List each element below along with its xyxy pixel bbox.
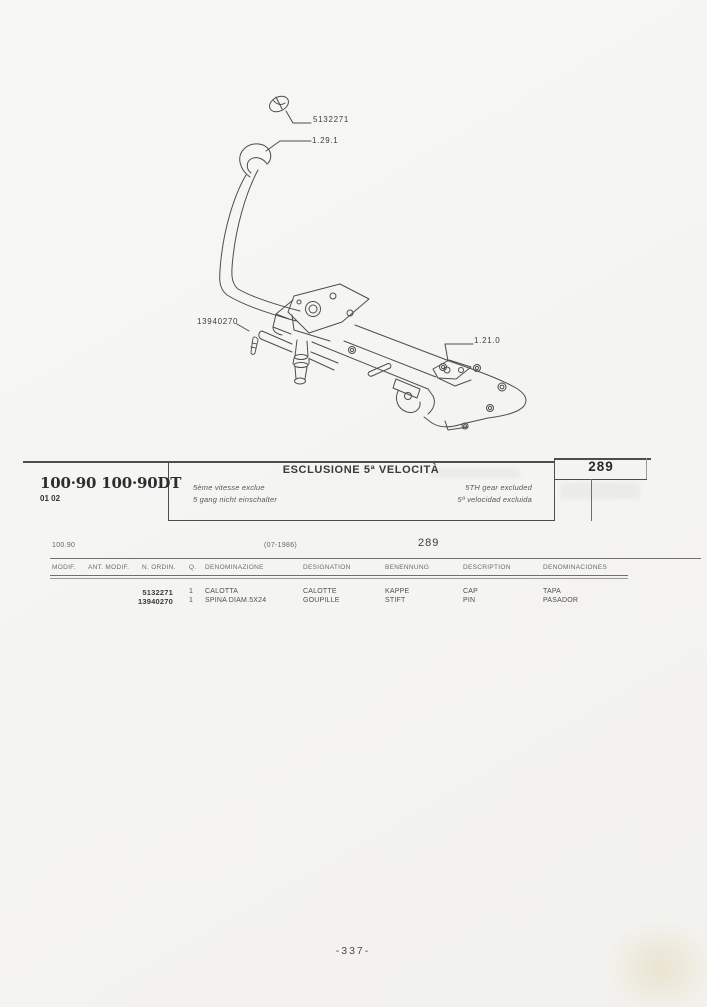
header-top-rule: [23, 461, 554, 463]
callout-cap-part-number: 5132271: [313, 116, 349, 124]
callout-cover-ref: 1.21.0: [474, 337, 500, 345]
col-header-description: DESCRIPTION: [463, 564, 511, 571]
col-header-modif: MODIF.: [52, 564, 76, 571]
col-header-n-ordin: N. ORDIN.: [142, 564, 176, 571]
callout-lever-ref: 1.29.1: [312, 137, 338, 145]
cap-part-drawing: [267, 93, 291, 115]
ref-box-underline: [554, 479, 647, 480]
table-page-ref: 289: [418, 537, 439, 549]
col-header-q: Q.: [189, 564, 196, 571]
subtitle-english: 5TH gear excluded: [400, 483, 532, 492]
part-number-cell: 5132271: [120, 588, 173, 597]
description-cell: CAP: [463, 588, 478, 595]
callout-pin-part-number: 13940270: [197, 318, 238, 326]
scan-smudge: [430, 468, 520, 478]
qty-cell: 1: [189, 588, 193, 595]
catalog-page-scan: 5132271 1.29.1 13940270 1.21.0 100·90 10…: [0, 0, 707, 1007]
subtitle-french: 5ème vitesse exclue: [193, 483, 265, 492]
table-top-rule: [50, 558, 701, 559]
col-header-denominaciones: DENOMINACIONES: [543, 564, 607, 571]
table-date-code: (07-1986): [264, 542, 297, 549]
table-header-rule-echo: [50, 578, 628, 579]
table-header-rule: [50, 575, 628, 576]
scan-smudge: [560, 483, 640, 499]
pin-leader-line: [237, 324, 249, 331]
description-cell: PIN: [463, 597, 475, 604]
knob-leader-line: [266, 141, 311, 151]
header-bottom-rule: [168, 520, 554, 521]
cap-leader-line: [286, 111, 311, 123]
denominaciones-cell: TAPA: [543, 588, 561, 595]
denominazione-cell: SPINA DIAM.5X24: [205, 597, 266, 604]
denominaciones-cell: PASADOR: [543, 597, 578, 604]
part-number-cell: 13940270: [120, 597, 173, 606]
cover-leader-line: [445, 344, 473, 361]
pin-part-drawing: [251, 337, 258, 354]
table-header-row: MODIF. ANT. MODIF. N. ORDIN. Q. DENOMINA…: [0, 564, 707, 575]
exploded-view-diagram: [0, 0, 707, 1007]
subtitle-spanish: 5ª velocidad excluida: [400, 495, 532, 504]
table-row: 13940270 1 SPINA DIAM.5X24 GOUPILLE STIF…: [0, 597, 707, 608]
col-header-ant-modif: ANT. MODIF.: [88, 564, 129, 571]
benennung-cell: KAPPE: [385, 588, 409, 595]
designation-cell: CALOTTE: [303, 588, 337, 595]
benennung-cell: STIFT: [385, 597, 405, 604]
housing-drawing: [259, 284, 526, 430]
model-designation: 100·90 100·90DT: [40, 474, 181, 492]
qty-cell: 1: [189, 597, 193, 604]
scan-stain: [605, 920, 707, 1007]
denominazione-cell: CALOTTA: [205, 588, 238, 595]
page-number: -337-: [298, 945, 408, 957]
col-header-designation: DESIGNATION: [303, 564, 351, 571]
gear-lever-drawing: [220, 144, 300, 321]
col-header-benennung: BENENNUNG: [385, 564, 429, 571]
col-header-denominazione: DENOMINAZIONE: [205, 564, 264, 571]
table-model-code: 100.90: [52, 542, 75, 549]
subtitle-german: 5 gang nicht einschalter: [193, 495, 277, 504]
section-page-ref: 289: [554, 459, 648, 474]
designation-cell: GOUPILLE: [303, 597, 340, 604]
modification-codes: 01 02: [40, 494, 60, 503]
